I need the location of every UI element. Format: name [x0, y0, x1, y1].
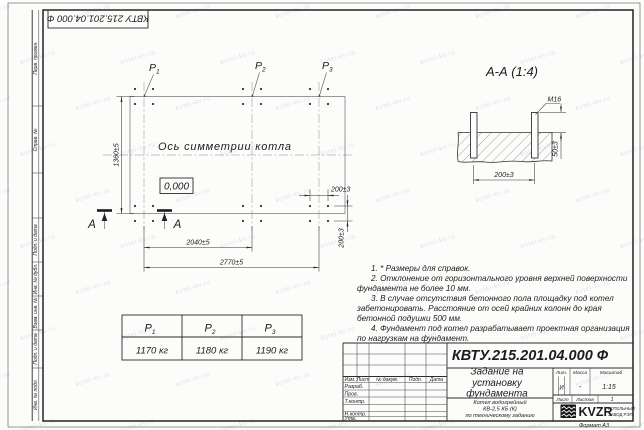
symmetry-axis-label: Ось симметрии котла	[158, 141, 292, 153]
margin-label: Справ. №	[33, 128, 39, 151]
product-name: Котел водогрейный КВ-2,5 КБ (К) по техни…	[465, 399, 535, 419]
scale-label: Масштаб	[600, 370, 623, 376]
top-code-text: КВТУ 215.201.04.000 Ф	[47, 13, 149, 24]
dim-span-total: 2770±5	[144, 226, 319, 272]
dim-section-width: 200±3	[474, 163, 535, 184]
svg-text:фундамента: фундамента	[466, 388, 528, 400]
drawing-sheet: kotel-kv.rukotel-kv.rukotel-kv.rukotel-k…	[0, 0, 644, 430]
kvzr-logo: KVZR КОТЕЛЬНЫЙ ЗАВОД РЭП	[561, 405, 635, 420]
section-letter: А	[173, 219, 182, 231]
table-value: 1190 кг	[256, 346, 289, 357]
section-letter: А	[87, 219, 96, 231]
table-header-p3: P3	[265, 323, 276, 337]
drawing-code: КВТУ.215.201.04.000 Ф	[452, 348, 609, 364]
table-header-p2: P2	[205, 323, 216, 337]
level-mark-value: 0,000	[164, 182, 189, 193]
point-label-p1: P1	[149, 62, 160, 76]
dim-height-value: 1360±5	[114, 143, 121, 166]
svg-text:Задание на: Задание на	[470, 367, 524, 378]
margin-label: Взам. инв. №	[33, 297, 39, 329]
title-block: КВТУ.215.201.04.000 Ф Изм. Лист № докум.…	[343, 343, 635, 429]
thread-label: М16	[548, 97, 562, 104]
margin-labels: Перв. примен. Справ. № Подп. и дата Инв.…	[33, 41, 39, 410]
svg-text:Котел водогрейный: Котел водогрейный	[473, 399, 526, 406]
sheet-label: Лист	[555, 397, 568, 403]
section-view: А-А (1:4) М16 50±3 200±3	[457, 64, 566, 184]
lit-value: И	[559, 386, 564, 392]
col-doc: № докум.	[376, 377, 398, 383]
dim-bolt-x-value: 200±3	[330, 187, 351, 194]
note-item: 2. Отклонение от горизонтального уровня …	[357, 274, 631, 294]
table-value: 1170 кг	[136, 346, 169, 357]
dim-bolt-x: 200±3	[299, 187, 351, 202]
row-check: Пров.	[345, 391, 359, 397]
dim-bolt-y-value: 200±3	[339, 228, 346, 249]
svg-text:КВ-2,5 КБ (К): КВ-2,5 КБ (К)	[483, 407, 517, 413]
point-label-p2: P2	[255, 60, 266, 74]
notes-block: 1. * Размеры для справок. 2. Отклонение …	[357, 264, 631, 344]
note-item: 1. * Размеры для справок.	[357, 264, 631, 274]
point-label-p3: P3	[322, 60, 333, 74]
dim-section-width-value: 200±3	[493, 172, 514, 179]
mass-value: -	[579, 384, 582, 391]
section-title: А-А (1:4)	[485, 64, 538, 79]
format-label: Формат А3	[579, 423, 610, 429]
margin-label: Подп. и дата	[33, 333, 39, 365]
level-mark: 0,000	[160, 178, 193, 194]
signature-rows: Разраб. Пров. Т.контр. Н.контр. Утв.	[345, 384, 367, 422]
col-date: Дата	[429, 377, 443, 383]
col-sign: Подп.	[409, 377, 422, 383]
table-header-p1: P1	[145, 323, 156, 337]
note-item: 4. Фундамент под котел разрабатывает про…	[357, 324, 631, 344]
dim-span1-value: 2040±5	[185, 240, 209, 247]
plan-view: P1 P2 P3 Ось симметрии котла 0,000 А А	[87, 60, 353, 272]
margin-label: Перв. примен.	[33, 41, 39, 74]
sheets-label: Листов	[575, 397, 594, 403]
top-code-stamp: КВТУ 215.201.04.000 Ф	[47, 10, 149, 28]
mass-label: Масса	[573, 370, 588, 376]
table-value: 1180 кг	[196, 346, 229, 357]
row-approve: Утв.	[345, 416, 357, 422]
margin-label: Подп. и дата	[33, 224, 39, 256]
margin-label: Инв. № дубл.	[33, 264, 39, 295]
col-list: Лист	[356, 377, 370, 383]
doc-title: Задание на установку фундамента	[466, 367, 528, 400]
load-point-labels: P1 P2 P3	[144, 60, 333, 97]
row-dev: Разраб.	[345, 384, 364, 390]
company-line2: ЗАВОД РЭП	[608, 412, 633, 417]
dim-bolt-y: 200±3	[334, 195, 353, 249]
note-item: 3. В случае отсутствия бетонного пола пл…	[357, 294, 631, 324]
svg-text:по техническому заданию: по техническому заданию	[465, 413, 535, 419]
anchor-bolt	[471, 113, 478, 159]
margin-label: Инв. № подл.	[33, 379, 39, 410]
load-table: P1 P2 P3 1170 кг 1180 кг 1190 кг	[122, 315, 302, 360]
company-line1: КОТЕЛЬНЫЙ	[608, 406, 635, 411]
col-izm: Изм.	[345, 377, 356, 383]
row-tcontr: Т.контр.	[345, 399, 366, 405]
dim-protrusion-value: 50±3	[553, 141, 560, 157]
anchor-bolt	[532, 113, 539, 159]
revision-header: Изм. Лист № докум. Подп. Дата	[345, 377, 444, 383]
scale-value: 1:15	[602, 384, 616, 391]
lit-label: Лит.	[555, 370, 567, 376]
svg-text:установку: установку	[471, 378, 523, 389]
dim-span-total-value: 2770±5	[219, 260, 243, 267]
sheets-value: 1	[610, 397, 613, 403]
lit-mass-scale: Лит. Масса Масштаб	[555, 370, 623, 376]
